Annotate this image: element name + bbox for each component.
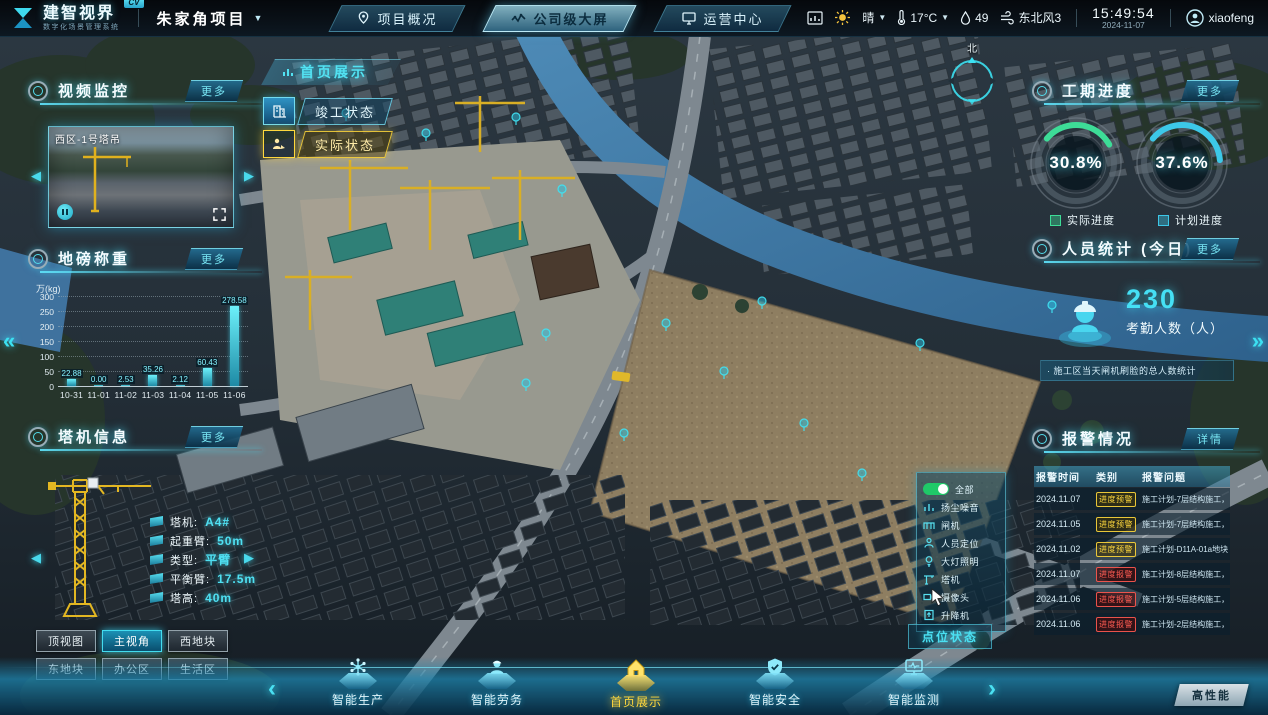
status-badge: 进度报警: [1096, 617, 1136, 632]
username-label: xiaofeng: [1209, 11, 1254, 25]
thermometer-icon: [897, 10, 906, 25]
divider: [138, 9, 139, 27]
wind-icon: [999, 11, 1014, 25]
pulse-chart-icon: [511, 12, 526, 24]
alarm-badge-icon: [1032, 429, 1052, 449]
fullscreen-button[interactable]: [213, 208, 226, 221]
staff-more-button[interactable]: 更多: [1181, 238, 1239, 260]
tab-project-overview[interactable]: 项目概况: [335, 5, 459, 32]
staff-badge-icon: [1032, 239, 1052, 259]
legend-item-gate[interactable]: 闸机: [923, 516, 999, 534]
view-button-main[interactable]: 主视角: [102, 630, 162, 652]
height-icon: [150, 592, 163, 603]
status-badge: 进度预警: [1096, 517, 1136, 532]
weighbridge-chart: 万(kg) 300 250 200 150 100 50 0 22.88 0.0…: [34, 282, 248, 404]
next-crane-arrow[interactable]: ▶: [244, 550, 254, 566]
water-drop-icon: [960, 11, 971, 25]
worker-avatar-icon: [1052, 284, 1118, 350]
dust-noise-icon: [923, 501, 935, 513]
clock: 15:49:54 2024-11-07: [1092, 5, 1155, 31]
weather-condition[interactable]: 晴 ▼: [862, 9, 886, 26]
next-camera-arrow[interactable]: ▶: [244, 168, 254, 184]
project-selector[interactable]: 朱家角项目 ▼: [157, 8, 266, 29]
attendance-count: 230: [1126, 284, 1177, 315]
bar: [121, 385, 130, 387]
compass-icon: [944, 55, 1000, 107]
actual-progress-legend: 实际进度: [1050, 212, 1115, 228]
tab-company-screen[interactable]: 公司级大屏: [489, 5, 630, 32]
tower-crane-icon: [923, 573, 935, 585]
legend-item-hoist[interactable]: 升降机: [923, 606, 999, 624]
nav-right-arrow[interactable]: ›: [988, 677, 996, 701]
status-badge: 进度报警: [1096, 592, 1136, 607]
crane-spec-row: 类型:平臂: [150, 550, 256, 569]
bar: [203, 368, 212, 386]
main-tabs: 项目概况 公司级大屏 运营中心: [335, 5, 785, 32]
breadcrumb: 首页展示: [282, 62, 368, 82]
video-panel-header: 视频监控: [28, 80, 130, 101]
camera-lens-icon: [28, 81, 48, 101]
bar: [94, 385, 103, 387]
actual-status-button[interactable]: 实际状态: [263, 130, 389, 158]
legend-item-dust-noise[interactable]: 扬尘噪音: [923, 498, 999, 516]
weighbridge-panel-header: 地磅称重: [28, 248, 130, 269]
staff-panel-title: 人员统计 (今日): [1062, 238, 1193, 259]
legend-square-icon: [1050, 215, 1061, 226]
calendar-grid-icon[interactable]: [807, 11, 823, 25]
bar-chart-icon: [282, 67, 295, 78]
attendance-note: · 施工区当天闸机刷脸的总人数统计: [1040, 360, 1234, 381]
fullscreen-icon: [213, 208, 226, 221]
prev-camera-arrow[interactable]: ◀: [31, 168, 41, 184]
alarm-detail-button[interactable]: 详情: [1181, 428, 1239, 450]
panel-underline: [40, 271, 262, 273]
bar: [148, 375, 157, 386]
tab-label: 公司级大屏: [533, 9, 608, 28]
pause-button[interactable]: [57, 204, 73, 220]
chart-bars: 22.88 0.00 2.53 35.26 2.12 60.43 278.58: [58, 296, 248, 386]
wind-label: 东北风3: [1018, 9, 1061, 26]
gate-icon: [923, 519, 935, 531]
panel-underline: [40, 103, 262, 105]
hoist-icon: [923, 609, 935, 621]
attendance-count-label: 考勤人数（人）: [1126, 318, 1224, 337]
nav-pedestal: [756, 673, 794, 689]
legend-item-camera[interactable]: 摄像头: [923, 588, 999, 606]
alarm-table-row[interactable]: 2024.11.06 进度报警 施工计划-5层结构施工，未完成: [1034, 588, 1230, 610]
top-right-cluster: 晴 ▼ 17°C ▼ 49 东北风3 15:49:54 2024-11: [807, 5, 1268, 31]
bar: [67, 379, 76, 386]
video-more-button[interactable]: 更多: [185, 80, 243, 102]
nav-smart-safety[interactable]: 智能安全: [735, 657, 815, 710]
weighbridge-panel-title: 地磅称重: [58, 248, 130, 269]
progress-panel-title: 工期进度: [1062, 80, 1134, 101]
monitor-icon: [682, 12, 696, 25]
nav-pedestal: [339, 673, 377, 689]
logo-icon: [10, 5, 36, 31]
temperature-label: 17°C: [910, 11, 937, 25]
app-logo: 建智视界 数字化场景管理系统 CV: [0, 5, 120, 31]
nav-label: 智能监测: [888, 691, 940, 708]
progress-more-button[interactable]: 更多: [1181, 80, 1239, 102]
panel-underline: [1044, 261, 1260, 263]
location-pin-icon: [357, 11, 370, 25]
project-name: 朱家角项目: [157, 8, 247, 29]
panel-underline: [1044, 103, 1260, 105]
crane-panel-title: 塔机信息: [58, 426, 130, 447]
nav-pedestal: [478, 673, 516, 689]
time-label: 15:49:54: [1092, 5, 1155, 21]
top-bar: 建智视界 数字化场景管理系统 CV 朱家角项目 ▼ 项目概况 公司级大屏: [0, 0, 1268, 37]
status-badge: 进度预警: [1096, 492, 1136, 507]
alarm-panel-header: 报警情况: [1032, 428, 1134, 449]
crane-spec-list: 塔机:A4# 起重臂:50m 类型:平臂 平衡臂:17.5m 塔高:40m: [150, 512, 256, 607]
crane-badge-icon: [28, 427, 48, 447]
divider: [1170, 9, 1171, 27]
nav-smart-production[interactable]: 智能生产: [318, 657, 398, 710]
prev-crane-arrow[interactable]: ◀: [31, 550, 41, 566]
sun-icon: [834, 9, 851, 26]
camera-name-label: 西区-1号塔吊: [55, 131, 121, 146]
crane-more-button[interactable]: 更多: [185, 426, 243, 448]
point-legend-panel: 全部 扬尘噪音 闸机 人员定位 大灯照明 塔机 摄像头 升降机: [916, 472, 1006, 632]
crane-spec-row: 塔高:40m: [150, 588, 256, 607]
completion-status-label: 竣工状态: [315, 102, 375, 121]
chevron-down-icon: ▼: [941, 13, 949, 22]
nav-label: 智能安全: [749, 691, 801, 708]
compass-north-label: 北: [944, 40, 1000, 55]
pan-right-arrow[interactable]: »: [1252, 330, 1264, 352]
chart-x-labels: 10-3111-01 11-0211-03 11-0411-05 11-06: [58, 390, 248, 400]
panel-underline: [1044, 451, 1260, 453]
wind: 东北风3: [999, 9, 1061, 26]
alarm-table-row[interactable]: 2024.11.07 进度报警 施工计划-8层结构施工，未完成: [1034, 563, 1230, 585]
app-subtitle: 数字化场景管理系统: [43, 24, 120, 31]
view-button-top[interactable]: 顶视图: [36, 630, 96, 652]
scale-icon: [28, 249, 48, 269]
humidity: 49: [960, 11, 988, 25]
video-panel-title: 视频监控: [58, 80, 130, 101]
bottom-nav: 智能生产 智能劳务 首页展示 智能安全 智能监测: [318, 657, 954, 710]
tower-icon: [150, 516, 163, 527]
divider: [1076, 9, 1077, 27]
legend-item-tower-crane[interactable]: 塔机: [923, 570, 999, 588]
nav-smart-labor[interactable]: 智能劳务: [457, 657, 537, 710]
weather-condition-label: 晴: [862, 9, 874, 26]
nav-left-arrow[interactable]: ‹: [268, 677, 276, 701]
bar: [230, 306, 239, 386]
alarm-table-row[interactable]: 2024.11.07 进度预警 施工计划-7层结构施工，未开始: [1034, 488, 1230, 510]
planned-progress-ring: 37.6%: [1134, 115, 1230, 211]
type-icon: [150, 554, 163, 565]
date-label: 2024-11-07: [1092, 21, 1155, 31]
worker-icon: [263, 130, 295, 158]
user-menu[interactable]: xiaofeng: [1186, 9, 1254, 27]
staff-panel-header: 人员统计 (今日): [1032, 238, 1193, 259]
progress-badge-icon: [1032, 81, 1052, 101]
temperature[interactable]: 17°C ▼: [897, 10, 949, 25]
tab-label: 运营中心: [703, 9, 763, 28]
alarm-table-row[interactable]: 2024.11.06 进度报警 施工计划-2层结构施工，未完成: [1034, 613, 1230, 635]
toggle-on-icon[interactable]: [923, 483, 949, 495]
counter-jib-icon: [150, 573, 163, 584]
legend-all-toggle[interactable]: 全部: [923, 480, 999, 498]
nav-pedestal: [895, 673, 933, 689]
crane-panel-header: 塔机信息: [28, 426, 130, 447]
nav-label: 首页展示: [610, 693, 662, 710]
performance-mode-button[interactable]: 高性能: [1174, 684, 1248, 706]
crane-spec-row: 起重臂:50m: [150, 531, 256, 550]
avatar-icon: [1186, 9, 1204, 27]
cv-badge: CV: [124, 0, 143, 8]
crane-in-video-icon: [77, 141, 137, 213]
alarm-panel-title: 报警情况: [1062, 428, 1134, 449]
alarm-table-header: 报警时间 类别 报警问题: [1034, 466, 1230, 487]
completion-status-button[interactable]: 竣工状态: [263, 97, 389, 125]
weighbridge-more-button[interactable]: 更多: [185, 248, 243, 270]
light-icon: [923, 555, 935, 567]
planned-progress-value: 37.6%: [1134, 115, 1230, 211]
camera-icon: [923, 591, 935, 603]
actual-status-label: 实际状态: [315, 135, 375, 154]
chevron-down-icon: ▼: [254, 13, 266, 23]
breadcrumb-label: 首页展示: [300, 62, 368, 82]
actual-progress-value: 30.8%: [1028, 115, 1124, 211]
chevron-down-icon: ▼: [878, 13, 886, 22]
nav-home-display[interactable]: 首页展示: [596, 657, 676, 710]
tab-operations-center[interactable]: 运营中心: [660, 5, 785, 32]
compass[interactable]: 北: [944, 40, 1000, 107]
nav-smart-monitoring[interactable]: 智能监测: [874, 657, 954, 710]
tab-label: 项目概况: [377, 9, 437, 28]
actual-progress-ring: 30.8%: [1028, 115, 1124, 211]
nav-label: 智能劳务: [471, 691, 523, 708]
view-button-west[interactable]: 西地块: [168, 630, 228, 652]
jib-icon: [150, 535, 163, 546]
crane-spec-row: 塔机:A4#: [150, 512, 256, 531]
video-feed[interactable]: 西区-1号塔吊: [48, 126, 234, 228]
crane-spec-row: 平衡臂:17.5m: [150, 569, 256, 588]
status-badge: 进度报警: [1096, 567, 1136, 582]
bar: [176, 385, 185, 387]
nav-label: 智能生产: [332, 691, 384, 708]
nav-pedestal: [617, 675, 655, 691]
planned-progress-legend: 计划进度: [1158, 212, 1223, 228]
building-icon: [263, 97, 295, 125]
app-title: 建智视界: [43, 6, 120, 22]
progress-panel-header: 工期进度: [1032, 80, 1134, 101]
pan-left-arrow[interactable]: «: [3, 330, 15, 352]
person-locate-icon: [923, 537, 935, 549]
point-status-button[interactable]: 点位状态: [908, 624, 992, 649]
legend-item-lighting[interactable]: 大灯照明: [923, 552, 999, 570]
legend-square-icon: [1158, 215, 1169, 226]
panel-underline: [40, 449, 262, 451]
tower-crane-illustration: [48, 462, 153, 624]
alarm-table-row[interactable]: 2024.11.02 进度预警 施工计划-D11A-01a地块A05#…: [1034, 538, 1230, 560]
alarm-table-row[interactable]: 2024.11.05 进度预警 施工计划-7层结构施工，未开始: [1034, 513, 1230, 535]
status-badge: 进度预警: [1096, 542, 1136, 557]
legend-item-personnel-location[interactable]: 人员定位: [923, 534, 999, 552]
humidity-label: 49: [975, 11, 988, 25]
